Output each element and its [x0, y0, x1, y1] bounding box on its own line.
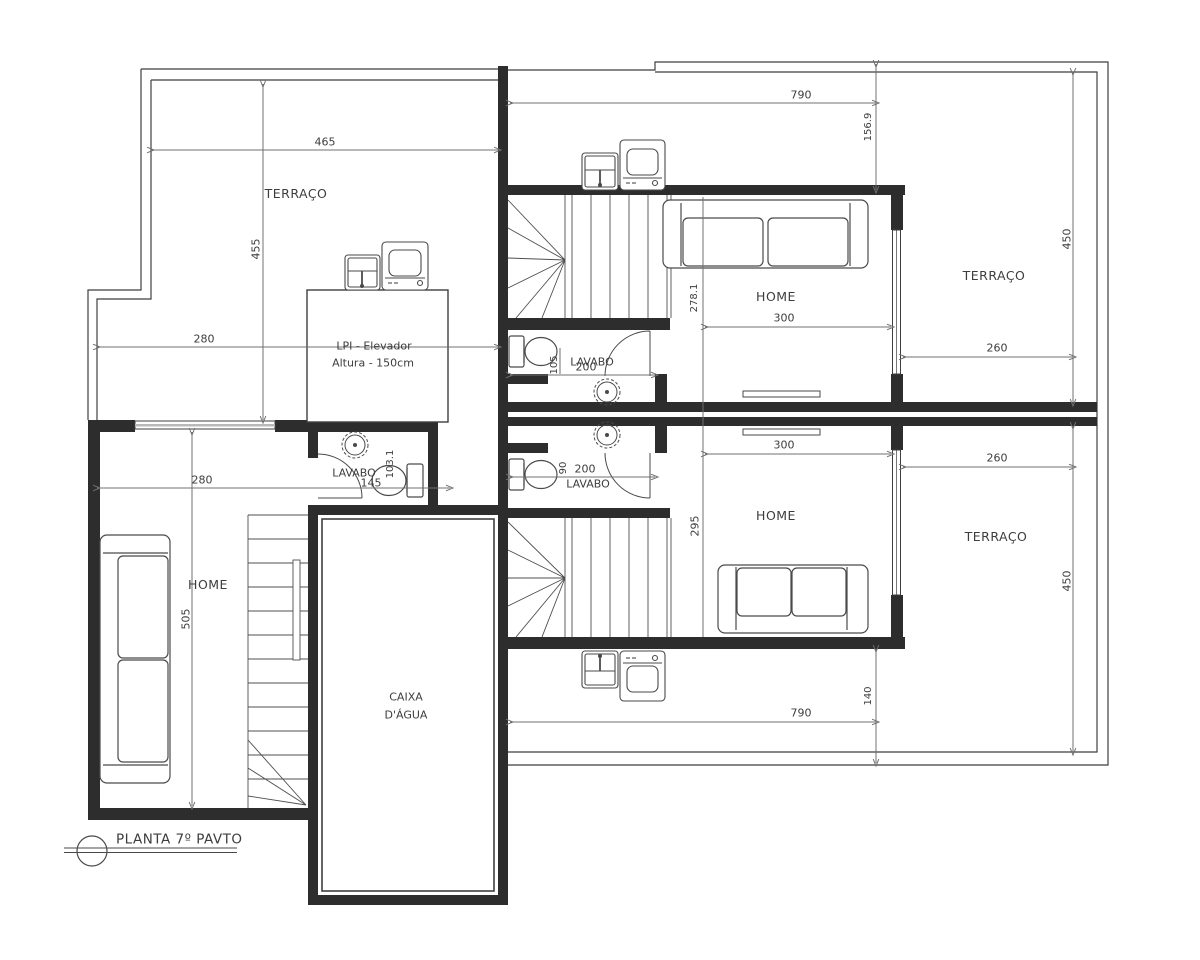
dim-200-top: 200 — [576, 362, 597, 373]
handrail — [293, 560, 300, 660]
dim-145: 145 — [361, 478, 382, 489]
stairs-left-home — [248, 515, 308, 808]
stairs-bottom-unit — [508, 518, 671, 637]
window — [135, 421, 275, 429]
room-label-lavabo-bottom: LAVABO — [566, 479, 610, 490]
washing-machine-icon — [620, 140, 665, 190]
floor-plan-page: TERRAÇO TERRAÇO TERRAÇO HOME HOME HOME L… — [0, 0, 1200, 960]
high-window — [743, 429, 820, 435]
water-tank-label-line2: D'ÁGUA — [385, 710, 428, 721]
dim-260-bottom: 260 — [987, 453, 1008, 464]
dim-450-bottom: 450 — [1062, 571, 1073, 592]
sofa-icon — [718, 565, 868, 633]
dim-280-home: 280 — [192, 475, 213, 486]
room-label-terrace-top-left: TERRAÇO — [265, 188, 328, 201]
dim-280-terrace: 280 — [194, 334, 215, 345]
window — [893, 230, 901, 374]
washing-machine-icon — [382, 242, 428, 290]
dim-140: 140 — [864, 686, 874, 705]
sofa-icon — [100, 535, 170, 783]
room-label-home-top-right: HOME — [756, 291, 796, 304]
dim-105: 105 — [550, 355, 560, 374]
windows — [135, 230, 901, 595]
floor-drain-icon — [342, 432, 368, 458]
dim-465: 465 — [315, 137, 336, 148]
water-tank-label-line1: CAIXA — [389, 692, 423, 703]
elevator-note-line2: Altura - 150cm — [332, 358, 414, 369]
page-title: PLANTA 7º PAVTO — [116, 833, 243, 847]
dim-260-top: 260 — [987, 343, 1008, 354]
dim-156-9: 156.9 — [864, 113, 874, 142]
water-tank-inner-outline — [322, 519, 494, 891]
dim-790-bottom: 790 — [791, 708, 812, 719]
dim-300-bottom: 300 — [774, 440, 795, 451]
dim-455: 455 — [251, 239, 262, 260]
title-marker-circle — [77, 836, 107, 866]
dim-300-top: 300 — [774, 313, 795, 324]
elevator-note-line1: LPI - Elevador — [336, 341, 411, 352]
dim-295: 295 — [690, 516, 701, 537]
dim-505: 505 — [181, 609, 192, 630]
room-label-home-left: HOME — [188, 579, 228, 592]
dim-200-bottom: 200 — [575, 464, 596, 475]
sofa-icon — [663, 200, 868, 268]
laundry-sink-icon — [345, 255, 380, 290]
laundry-sink-icon — [582, 651, 618, 688]
dim-90: 90 — [559, 462, 569, 475]
room-label-terrace-bottom-right: TERRAÇO — [965, 531, 1028, 544]
washing-machine-icon — [620, 651, 665, 701]
room-label-terrace-top-right: TERRAÇO — [963, 270, 1026, 283]
toilet-icon — [509, 459, 557, 490]
floor-drain-icon — [594, 379, 620, 405]
window — [893, 450, 901, 595]
dim-103-1: 103.1 — [386, 450, 396, 479]
laundry-sink-icon — [582, 153, 618, 190]
dim-790-top: 790 — [791, 90, 812, 101]
dim-450-top: 450 — [1062, 229, 1073, 250]
high-window — [743, 391, 820, 397]
room-label-home-bottom-right: HOME — [756, 510, 796, 523]
dim-278-1: 278.1 — [690, 284, 700, 313]
stairs-top-unit — [508, 195, 671, 318]
